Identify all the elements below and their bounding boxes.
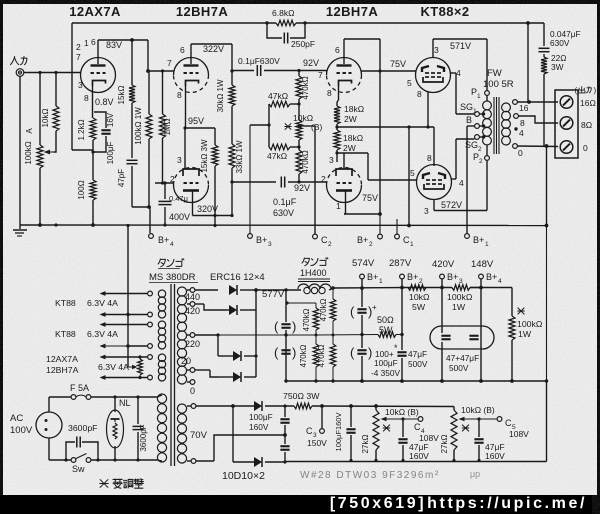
svg-text:75V: 75V — [390, 59, 406, 69]
svg-text:3: 3 — [268, 241, 272, 248]
svg-text:100μF: 100μF — [249, 412, 273, 422]
svg-text:3: 3 — [434, 45, 439, 55]
svg-text:500V: 500V — [449, 363, 469, 373]
svg-text:0.47μ: 0.47μ — [169, 194, 188, 203]
svg-text:2: 2 — [328, 241, 332, 248]
svg-text:100μF160V: 100μF160V — [334, 413, 343, 452]
svg-text:1: 1 — [485, 241, 489, 248]
svg-text:27kΩ: 27kΩ — [440, 435, 449, 454]
svg-text:83V: 83V — [106, 40, 122, 50]
svg-text:): ) — [292, 345, 296, 360]
svg-text:2: 2 — [76, 42, 81, 52]
svg-text:(: ( — [274, 319, 279, 334]
svg-text:1: 1 — [379, 278, 383, 285]
svg-text:47kΩ: 47kΩ — [268, 91, 288, 101]
svg-text:160V: 160V — [249, 422, 269, 432]
svg-text:440: 440 — [185, 292, 200, 302]
svg-text:2: 2 — [369, 241, 373, 248]
svg-text:10kΩ: 10kΩ — [409, 292, 430, 302]
svg-text:0.1μF630V: 0.1μF630V — [238, 56, 280, 66]
svg-text:6: 6 — [91, 37, 96, 47]
svg-text:8: 8 — [520, 118, 525, 128]
svg-text:3: 3 — [177, 155, 182, 165]
svg-text:3600pF: 3600pF — [139, 424, 148, 451]
svg-text:7: 7 — [318, 70, 323, 80]
svg-text:3600pF: 3600pF — [68, 423, 97, 433]
svg-text:(: ( — [575, 86, 578, 95]
svg-text:6.3V 4A: 6.3V 4A — [87, 329, 118, 339]
svg-text:8: 8 — [177, 90, 182, 100]
svg-text:C: C — [306, 426, 313, 436]
svg-text:470kΩ: 470kΩ — [302, 308, 311, 331]
svg-text:B+: B+ — [367, 272, 378, 282]
svg-text:4: 4 — [519, 128, 524, 138]
svg-text:C: C — [414, 422, 421, 432]
svg-text:10kΩ: 10kΩ — [41, 109, 50, 128]
svg-text:108V: 108V — [509, 429, 529, 439]
svg-text:2: 2 — [479, 158, 483, 165]
svg-text:5W: 5W — [379, 325, 393, 335]
svg-text:12BH7A: 12BH7A — [176, 4, 228, 19]
svg-text:1: 1 — [336, 201, 341, 211]
svg-text:0.8V: 0.8V — [95, 97, 114, 107]
svg-text:MS 380DR: MS 380DR — [149, 272, 196, 283]
svg-text:AC: AC — [10, 413, 23, 424]
svg-text:220: 220 — [185, 339, 200, 349]
svg-text:150V: 150V — [307, 438, 327, 448]
svg-text:92V: 92V — [294, 183, 310, 193]
svg-text:160V: 160V — [485, 451, 505, 461]
svg-text:33kΩ 1W: 33kΩ 1W — [235, 140, 244, 174]
svg-text:C: C — [321, 235, 328, 245]
svg-text:KT88: KT88 — [55, 329, 76, 339]
svg-text:KT88×2: KT88×2 — [420, 4, 469, 19]
svg-text:1.2kΩ: 1.2kΩ — [77, 119, 86, 140]
svg-text:15kΩ 3W: 15kΩ 3W — [200, 139, 209, 173]
svg-text:B+: B+ — [473, 235, 484, 245]
svg-text:100Ω: 100Ω — [77, 180, 86, 199]
svg-text:47kΩ: 47kΩ — [267, 151, 287, 161]
svg-text:12BH7A: 12BH7A — [46, 365, 79, 375]
svg-text:75V: 75V — [362, 193, 378, 203]
svg-text:1: 1 — [477, 93, 481, 100]
svg-text:(: ( — [350, 304, 355, 319]
svg-text:2W: 2W — [344, 114, 357, 124]
svg-text:100μF: 100μF — [374, 358, 398, 368]
svg-text:+: + — [372, 303, 377, 312]
svg-text:100kΩ: 100kΩ — [447, 292, 473, 302]
svg-text:630V: 630V — [550, 38, 570, 48]
svg-text:30kΩ 1W: 30kΩ 1W — [216, 79, 225, 113]
svg-text:A: A — [25, 128, 34, 134]
svg-text:400V: 400V — [169, 212, 190, 222]
svg-text:): ) — [292, 319, 296, 334]
svg-text:322V: 322V — [203, 44, 224, 54]
svg-text:5: 5 — [407, 78, 412, 88]
svg-text:0: 0 — [518, 148, 523, 158]
svg-text:8: 8 — [84, 93, 89, 103]
svg-text:NL: NL — [119, 398, 131, 408]
svg-text:3W: 3W — [551, 62, 564, 72]
svg-text:B+: B+ — [407, 272, 418, 282]
svg-text:6: 6 — [335, 45, 340, 55]
svg-text:8: 8 — [417, 89, 422, 99]
svg-text:): ) — [368, 345, 372, 360]
svg-text:12BH7A: 12BH7A — [326, 4, 378, 19]
svg-text:8: 8 — [427, 153, 432, 163]
svg-text:1: 1 — [84, 38, 89, 48]
svg-text:ERC16 12×4: ERC16 12×4 — [210, 272, 265, 283]
svg-text:500V: 500V — [408, 359, 428, 369]
svg-text:4: 4 — [170, 241, 174, 248]
svg-text:6.3V 4A: 6.3V 4A — [87, 298, 118, 308]
svg-text:*: * — [394, 343, 398, 353]
svg-text:B+: B+ — [256, 235, 267, 245]
svg-text:4: 4 — [498, 278, 502, 285]
svg-text:470kΩ: 470kΩ — [299, 344, 308, 367]
svg-text:1W: 1W — [452, 302, 466, 312]
svg-text:10D10×2: 10D10×2 — [222, 470, 265, 482]
svg-text:1: 1 — [410, 241, 414, 248]
svg-text:0: 0 — [190, 386, 195, 396]
svg-text:470kΩ: 470kΩ — [301, 150, 310, 173]
svg-text:1H400: 1H400 — [300, 268, 327, 278]
svg-text:SG: SG — [460, 102, 473, 112]
svg-text:470kΩ: 470kΩ — [301, 76, 310, 99]
svg-text:160V: 160V — [409, 451, 429, 461]
svg-text:B: B — [466, 115, 472, 125]
svg-text:-4 350V: -4 350V — [371, 368, 401, 378]
svg-text:572V: 572V — [441, 200, 462, 210]
svg-text:KT88: KT88 — [55, 298, 76, 308]
svg-text:100V: 100V — [10, 425, 33, 436]
svg-text:SG: SG — [465, 140, 478, 150]
svg-text:Sw: Sw — [72, 464, 85, 474]
svg-text:574V: 574V — [352, 258, 375, 269]
svg-text:100 5R: 100 5R — [483, 79, 514, 90]
svg-text:B+: B+ — [158, 235, 169, 245]
svg-text:8: 8 — [327, 88, 332, 98]
svg-text:μp: μp — [470, 469, 480, 479]
svg-text:148V: 148V — [471, 259, 494, 270]
svg-text:27kΩ: 27kΩ — [361, 435, 370, 454]
svg-text:420V: 420V — [432, 259, 455, 270]
svg-text:750Ω 3W: 750Ω 3W — [283, 391, 320, 401]
svg-text:250pF: 250pF — [291, 39, 315, 49]
svg-text:10kΩ (B): 10kΩ (B) — [461, 405, 495, 415]
svg-text:(: ( — [274, 345, 279, 360]
svg-text:W#28 DTW03 9F3296m²: W#28 DTW03 9F3296m² — [300, 470, 440, 481]
svg-text:70V: 70V — [190, 430, 208, 441]
svg-text:47+47μF: 47+47μF — [446, 353, 479, 363]
svg-text:8Ω: 8Ω — [581, 120, 592, 130]
svg-text:C: C — [403, 235, 410, 245]
svg-text:100μF: 100μF — [106, 141, 115, 164]
svg-text:B+: B+ — [447, 272, 458, 282]
svg-text:16: 16 — [519, 103, 529, 113]
svg-text:15kΩ: 15kΩ — [117, 86, 126, 105]
svg-text:1W: 1W — [518, 329, 532, 339]
svg-text:0: 0 — [583, 143, 588, 153]
svg-text:2W: 2W — [343, 143, 356, 153]
svg-text:C: C — [505, 418, 512, 428]
svg-text:16Ω: 16Ω — [580, 98, 596, 108]
svg-text:100kΩ 1W: 100kΩ 1W — [134, 107, 143, 145]
svg-text:7: 7 — [76, 52, 81, 62]
svg-text:(: ( — [350, 345, 355, 360]
svg-text:16V: 16V — [106, 112, 115, 127]
svg-text:571V: 571V — [450, 41, 471, 51]
svg-text:50Ω: 50Ω — [377, 315, 394, 325]
svg-text:92V: 92V — [303, 58, 319, 68]
svg-text:12AX7A: 12AX7A — [46, 354, 78, 364]
svg-text:0.1μF: 0.1μF — [273, 197, 297, 207]
svg-text:(B): (B) — [311, 122, 323, 132]
svg-text:F 5A: F 5A — [70, 383, 89, 393]
svg-text:287V: 287V — [389, 258, 412, 269]
svg-text:6.3V 4A: 6.3V 4A — [98, 362, 129, 372]
svg-text:320V: 320V — [197, 204, 218, 214]
svg-text:630V: 630V — [273, 208, 294, 218]
svg-text:100kΩ: 100kΩ — [517, 319, 543, 329]
svg-text:12AX7A: 12AX7A — [69, 4, 121, 19]
svg-text:47μF: 47μF — [408, 349, 427, 359]
svg-text:FW: FW — [487, 68, 502, 79]
svg-text:5W: 5W — [412, 302, 426, 312]
svg-text:7: 7 — [167, 58, 172, 68]
svg-text:4: 4 — [456, 68, 461, 78]
svg-text:3: 3 — [78, 80, 83, 90]
svg-text:470kΩ: 470kΩ — [319, 298, 328, 321]
svg-text:1MΩ: 1MΩ — [163, 118, 172, 135]
svg-text:B+: B+ — [486, 272, 497, 282]
svg-text:2: 2 — [321, 174, 326, 184]
svg-text:6.8kΩ: 6.8kΩ — [272, 8, 294, 18]
svg-text:10kΩ (B): 10kΩ (B) — [385, 407, 419, 417]
svg-text:18kΩ: 18kΩ — [344, 104, 364, 114]
svg-text:100kΩ: 100kΩ — [24, 141, 33, 164]
svg-text:420: 420 — [185, 306, 200, 316]
svg-text:3: 3 — [329, 155, 334, 165]
svg-text:B+: B+ — [357, 235, 368, 245]
svg-text:5: 5 — [410, 168, 415, 178]
svg-text:470kΩ: 470kΩ — [317, 344, 326, 367]
svg-text:6: 6 — [180, 45, 185, 55]
svg-text:): ) — [594, 86, 597, 95]
svg-text:20: 20 — [181, 356, 191, 366]
svg-text:4: 4 — [459, 178, 464, 188]
svg-text:18kΩ: 18kΩ — [343, 133, 363, 143]
svg-text:95V: 95V — [188, 116, 204, 126]
svg-text:47pF: 47pF — [117, 169, 126, 187]
svg-text:3: 3 — [424, 206, 429, 216]
